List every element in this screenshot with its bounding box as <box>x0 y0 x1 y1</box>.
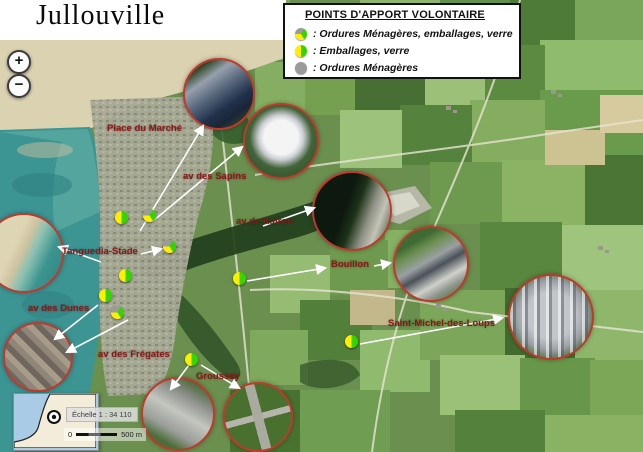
map-label-av-des-dunes: av des Dunes <box>28 303 89 314</box>
waste-point-marker[interactable] <box>119 269 132 282</box>
waste-point-marker[interactable] <box>233 272 246 285</box>
zoom-in-button[interactable]: + <box>7 50 31 74</box>
photo-inset-junction <box>223 382 293 452</box>
photo-inset-farm <box>393 226 469 302</box>
photo-inset-market <box>183 58 255 130</box>
map-label-av-des-sapins: av des Sapins <box>183 171 246 182</box>
photo-inset-quarry-woods <box>312 171 392 251</box>
scale-bar-line <box>76 433 117 436</box>
map-label-groussey: Groussey <box>196 371 240 382</box>
waste-point-marker[interactable] <box>163 240 176 253</box>
map-label-tanguedia-stade: Tanguedia-Stade <box>62 246 138 257</box>
scale-bar-start: 0 <box>68 430 72 439</box>
photo-inset-parking <box>508 274 594 360</box>
photo-inset-rooftops <box>3 322 73 392</box>
map-label-bouillon: Bouillon <box>331 259 369 270</box>
zoom-out-button[interactable]: − <box>7 74 31 98</box>
legend-item-label: : Ordures Ménagères <box>313 62 418 74</box>
legend-item: : Ordures Ménagères <box>295 59 513 76</box>
map-label-av-de-kairon: av de Kairon <box>236 216 293 227</box>
waste-point-marker[interactable] <box>345 335 358 348</box>
legend-item: : Emballages, verre <box>295 42 513 59</box>
photo-inset-road <box>141 377 215 451</box>
waste-point-marker[interactable] <box>99 289 112 302</box>
waste-point-marker[interactable] <box>115 211 128 224</box>
photo-inset-white-building <box>243 103 319 179</box>
page-title: Jullouville <box>36 0 165 32</box>
legend-panel: POINTS D'APPORT VOLONTAIRE : Ordures Mén… <box>283 3 521 79</box>
pie-grey-yellow-green-icon <box>295 28 307 40</box>
map-label-place-du-marche: Place du Marché <box>107 123 182 134</box>
waste-point-marker[interactable] <box>185 353 198 366</box>
map-application-window: Place du Marché av des Sapins av de Kair… <box>0 0 643 452</box>
waste-point-marker[interactable] <box>143 209 156 222</box>
pie-yellow-green-icon <box>295 45 307 57</box>
map-label-av-des-fregates: av des Frégates <box>98 349 170 360</box>
legend-item: : Ordures Ménagères, emballages, verre <box>295 25 513 42</box>
overview-inset-map <box>13 393 99 451</box>
waste-point-marker[interactable] <box>111 306 124 319</box>
legend-item-label: : Ordures Ménagères, emballages, verre <box>313 28 513 40</box>
legend-title: POINTS D'APPORT VOLONTAIRE <box>305 9 513 21</box>
map-label-saint-michel-des-loups: Saint-Michel-des-Loups <box>388 318 495 329</box>
scale-ratio-label: Échelle 1 : 34 110 <box>66 407 138 422</box>
header-band: Jullouville <box>0 0 286 40</box>
scale-bar: 0 500 m <box>64 428 146 441</box>
grey-circle-icon <box>295 62 307 74</box>
scale-bar-end: 500 m <box>121 430 142 439</box>
legend-item-label: : Emballages, verre <box>313 45 409 57</box>
